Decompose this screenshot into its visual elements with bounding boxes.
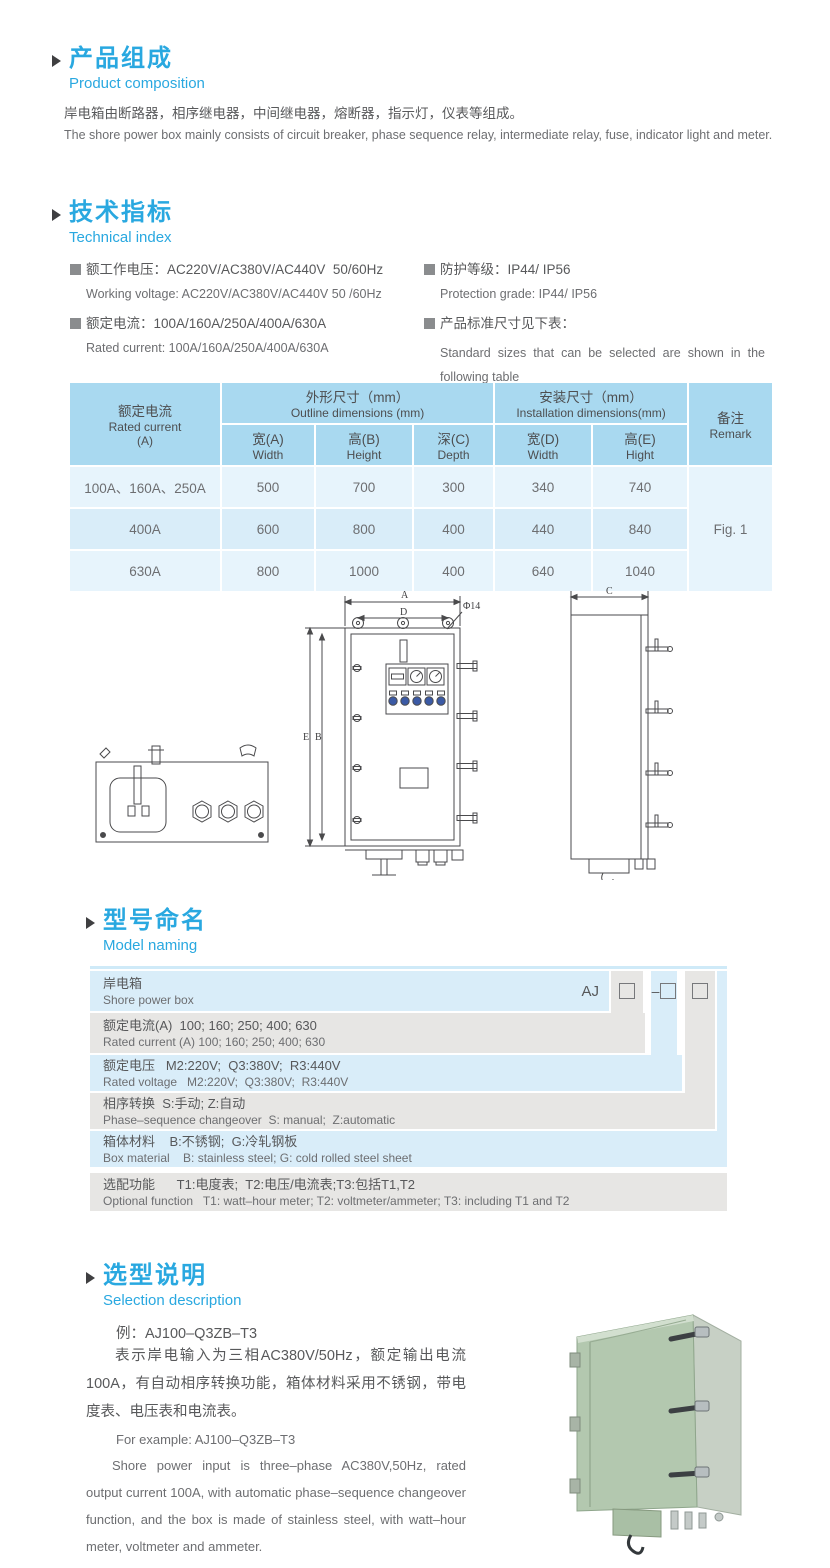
- header-en: Height: [316, 448, 412, 462]
- header-zh: 额定电流: [70, 400, 220, 420]
- selection-example-zh: 例：AJ100–Q3ZB–T3: [116, 1322, 257, 1343]
- dim-label-phi: Φ14: [463, 601, 480, 612]
- code-box: [619, 983, 635, 999]
- technical-title-zh: 技术指标: [69, 200, 173, 226]
- model-row-optional-function: 选配功能 T1:电度表; T2:电压/电流表;T3:包括T1,T2 Option…: [90, 1173, 727, 1211]
- table-row: 400A 600 800 400 440 840: [70, 509, 772, 549]
- spec-text: 防护等级：IP44/ IP56: [440, 262, 571, 277]
- cell-install-height: 740: [593, 467, 687, 507]
- header-zh: 深(C): [414, 428, 493, 448]
- cell-current: 630A: [70, 551, 220, 591]
- model-row-box-material: 箱体材料 B:不锈钢; G:冷轧钢板 Box material B: stain…: [90, 1131, 727, 1167]
- bullet-square-icon: [424, 264, 435, 275]
- composition-title-en: Product composition: [69, 75, 205, 92]
- model-row-shore-power-box: 岸电箱 Shore power box AJ: [90, 971, 609, 1011]
- section-marker-icon: [52, 55, 61, 67]
- code-box: [692, 983, 708, 999]
- model-row-zh: 岸电箱: [103, 975, 194, 992]
- selection-title-zh: 选型说明: [103, 1263, 241, 1289]
- selection-example-en: For example: AJ100–Q3ZB–T3: [116, 1432, 295, 1447]
- technical-title-en: Technical index: [69, 229, 173, 246]
- spec-text: 产品标准尺寸见下表：: [440, 316, 575, 331]
- cell-depth: 400: [414, 509, 493, 549]
- header-en: Rated current: [70, 420, 220, 434]
- header-en: Depth: [414, 448, 493, 462]
- header-zh: 备注: [689, 407, 772, 427]
- bullet-square-icon: [70, 264, 81, 275]
- cell-install-width: 440: [495, 509, 591, 549]
- header-en: Width: [495, 448, 591, 462]
- col-group-outline: 外形尺寸（mm） Outline dimensions (mm): [222, 383, 493, 423]
- header-en: Hight: [593, 448, 687, 462]
- spec-item-zh: 额定电流：100A/160A/250A/400A/630A: [70, 312, 415, 332]
- code-dash: –: [652, 983, 660, 999]
- cell-remark: Fig. 1: [689, 467, 772, 591]
- cell-height: 700: [316, 467, 412, 507]
- bullet-square-icon: [424, 318, 435, 329]
- spec-item-en: Rated current: 100A/160A/250A/400A/630A: [70, 341, 415, 355]
- header-en: Outline dimensions (mm): [222, 406, 493, 420]
- table-row: 100A、160A、250A 500 700 300 340 740 Fig. …: [70, 467, 772, 507]
- header-en: Remark: [689, 427, 772, 441]
- front-view-drawing: A D Φ14 E B: [300, 588, 510, 888]
- model-table-top-strip: [90, 966, 727, 969]
- selection-title-en: Selection description: [103, 1292, 241, 1309]
- header-zh: 宽(D): [495, 428, 591, 448]
- cell-width: 500: [222, 467, 314, 507]
- bottom-view-drawing: [90, 738, 275, 853]
- model-row-en: Phase–sequence changeover S: manual; Z:a…: [103, 1112, 395, 1128]
- catalog-page: { "colors": { "accent_blue": "#29a8e0", …: [0, 0, 830, 1568]
- spec-list-right: 防护等级：IP44/ IP56 Protection grade: IP44/ …: [424, 258, 764, 400]
- composition-body-zh: 岸电箱由断路器，相序继电器，中间继电器，熔断器，指示灯，仪表等组成。: [64, 102, 804, 122]
- cell-current: 400A: [70, 509, 220, 549]
- model-row-zh: 额定电流(A) 100; 160; 250; 400; 630: [103, 1017, 325, 1034]
- col-header-height-e: 高(E)Hight: [593, 425, 687, 465]
- section-technical-index-header: 技术指标 Technical index: [52, 200, 173, 246]
- model-naming-title-zh: 型号命名: [103, 908, 207, 934]
- cell-depth: 300: [414, 467, 493, 507]
- model-naming-title-en: Model naming: [103, 937, 207, 954]
- col-header-depth-c: 深(C)Depth: [414, 425, 493, 465]
- cell-depth: 400: [414, 551, 493, 591]
- model-row-rated-voltage: 额定电压 M2:220V; Q3:380V; R3:440V Rated vol…: [90, 1055, 682, 1091]
- model-row-zh: 选配功能 T1:电度表; T2:电压/电流表;T3:包括T1,T2: [103, 1176, 569, 1193]
- header-zh: 外形尺寸（mm）: [222, 386, 493, 406]
- cell-height: 1000: [316, 551, 412, 591]
- model-row-en: Rated voltage M2:220V; Q3:380V; R3:440V: [103, 1074, 348, 1090]
- bullet-square-icon: [70, 318, 81, 329]
- product-photo: [543, 1283, 813, 1566]
- model-row-zh: 箱体材料 B:不锈钢; G:冷轧钢板: [103, 1133, 412, 1150]
- header-en: Installation dimensions(mm): [495, 406, 687, 420]
- side-view-drawing: C: [553, 585, 688, 880]
- selection-paragraph-en: Shore power input is three–phase AC380V,…: [86, 1452, 466, 1560]
- selection-paragraph-zh: 表示岸电输入为三相AC380V/50Hz，额定输出电流100A，有自动相序转换功…: [86, 1342, 466, 1426]
- model-code-prefix: AJ: [581, 983, 609, 1000]
- section-marker-icon: [86, 917, 95, 929]
- col-header-remark: 备注 Remark: [689, 383, 772, 465]
- section-model-naming-header: 型号命名 Model naming: [86, 908, 207, 954]
- cell-current: 100A、160A、250A: [70, 467, 220, 507]
- col-group-installation: 安装尺寸（mm） Installation dimensions(mm): [495, 383, 687, 423]
- dim-label-a: A: [401, 590, 409, 601]
- header-zh: 安装尺寸（mm）: [495, 386, 687, 406]
- section-marker-icon: [52, 209, 61, 221]
- header-zh: 高(E): [593, 428, 687, 448]
- model-row-zh: 额定电压 M2:220V; Q3:380V; R3:440V: [103, 1057, 348, 1074]
- dimensions-table: 额定电流 Rated current (A) 外形尺寸（mm） Outline …: [68, 381, 774, 593]
- header-zh: 高(B): [316, 428, 412, 448]
- dim-label-c: C: [606, 586, 613, 597]
- composition-body-en: The shore power box mainly consists of c…: [64, 128, 814, 142]
- header-unit: (A): [70, 434, 220, 448]
- cell-install-height: 840: [593, 509, 687, 549]
- col-header-width-a: 宽(A)Width: [222, 425, 314, 465]
- spec-item-en: Protection grade: IP44/ IP56: [424, 287, 764, 301]
- dim-label-d: D: [400, 607, 407, 618]
- composition-title-zh: 产品组成: [69, 46, 205, 72]
- spec-item-zh: 额工作电压：AC220V/AC380V/AC440V 50/60Hz: [70, 258, 415, 278]
- spec-item-zh: 产品标准尺寸见下表：: [424, 312, 764, 332]
- model-row-en: Shore power box: [103, 992, 194, 1008]
- spec-text: 额工作电压：AC220V/AC380V/AC440V 50/60Hz: [86, 262, 383, 277]
- model-row-rated-current: 额定电流(A) 100; 160; 250; 400; 630 Rated cu…: [90, 1013, 645, 1053]
- col-header-height-b: 高(B)Height: [316, 425, 412, 465]
- dim-label-e: E: [303, 732, 309, 743]
- section-product-composition-header: 产品组成 Product composition: [52, 46, 205, 92]
- model-row-en: Rated current (A) 100; 160; 250; 400; 63…: [103, 1034, 325, 1050]
- model-row-zh: 相序转换 S:手动; Z:自动: [103, 1095, 395, 1112]
- col-header-rated-current: 额定电流 Rated current (A): [70, 383, 220, 465]
- section-marker-icon: [86, 1272, 95, 1284]
- cell-width: 600: [222, 509, 314, 549]
- model-row-en: Optional function T1: watt–hour meter; T…: [103, 1193, 569, 1209]
- col-header-width-d: 宽(D)Width: [495, 425, 591, 465]
- model-row-phase-sequence: 相序转换 S:手动; Z:自动 Phase–sequence changeove…: [90, 1093, 715, 1129]
- spec-item-zh: 防护等级：IP44/ IP56: [424, 258, 764, 278]
- model-row-en: Box material B: stainless steel; G: cold…: [103, 1150, 412, 1166]
- section-selection-header: 选型说明 Selection description: [86, 1263, 241, 1309]
- code-box: [660, 983, 676, 999]
- spec-list-left: 额工作电压：AC220V/AC380V/AC440V 50/60Hz Worki…: [70, 258, 415, 366]
- cell-install-width: 340: [495, 467, 591, 507]
- spec-item-en: Working voltage: AC220V/AC380V/AC440V 50…: [70, 287, 415, 301]
- cell-width: 800: [222, 551, 314, 591]
- spec-text: 额定电流：100A/160A/250A/400A/630A: [86, 316, 326, 331]
- dim-label-b: B: [315, 732, 322, 743]
- header-en: Width: [222, 448, 314, 462]
- header-zh: 宽(A): [222, 428, 314, 448]
- cell-height: 800: [316, 509, 412, 549]
